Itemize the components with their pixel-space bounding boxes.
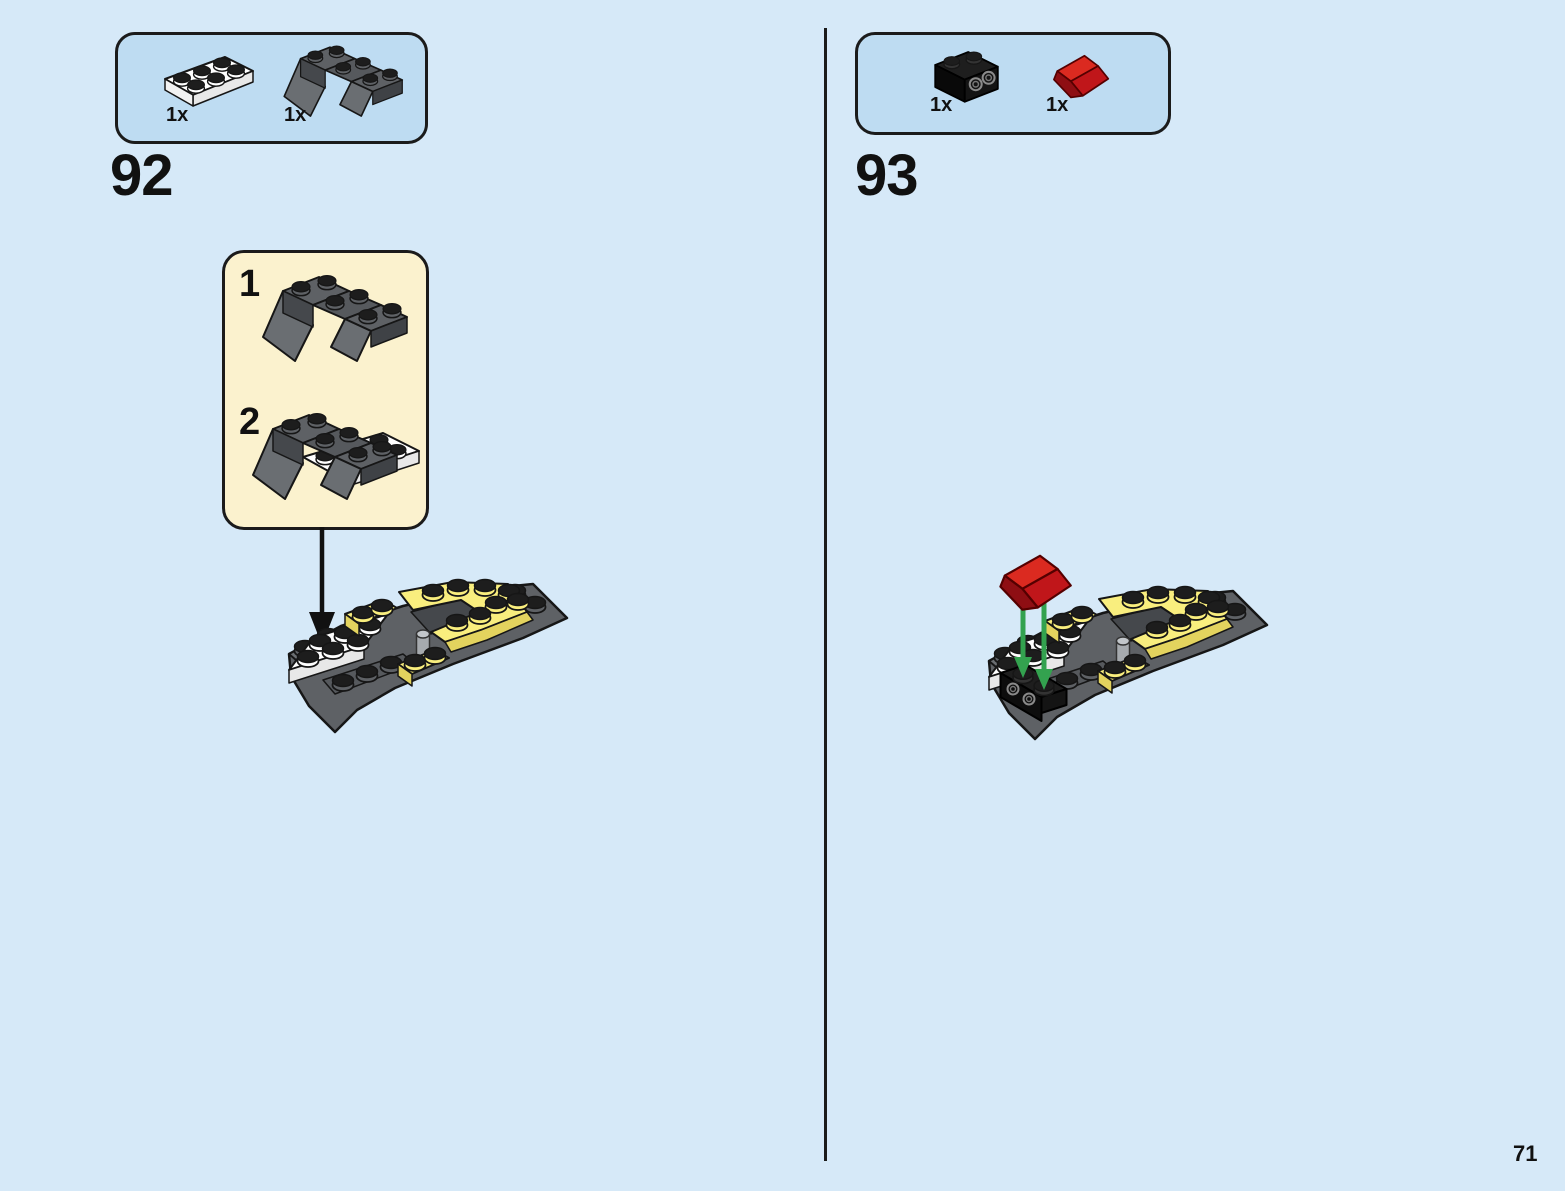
step93-assembly-graphic [983, 545, 1278, 770]
step92-parts-panel: 1x 1x [115, 32, 428, 144]
instruction-page: 1x 1x 92 1 2 [0, 0, 1565, 1191]
step-number-93: 93 [855, 147, 918, 205]
part-count-label: 1x [930, 95, 952, 115]
step93-parts-panel: 1x 1x [855, 32, 1171, 135]
part-count-label: 1x [284, 105, 306, 125]
part-count-label: 1x [1046, 95, 1068, 115]
step-number-92: 92 [110, 147, 173, 205]
column-divider [824, 28, 827, 1161]
red-slope-floating-piece [1000, 556, 1070, 610]
substep-1-piece-icon [253, 267, 423, 392]
page-number: 71 [1513, 1143, 1537, 1165]
part-white-plate-2x3-icon [153, 49, 268, 111]
part-count-label: 1x [166, 105, 188, 125]
substep-2-piece-icon [243, 405, 433, 525]
step92-substep-callout: 1 2 [222, 250, 429, 530]
step92-assembly-graphic [283, 578, 578, 763]
